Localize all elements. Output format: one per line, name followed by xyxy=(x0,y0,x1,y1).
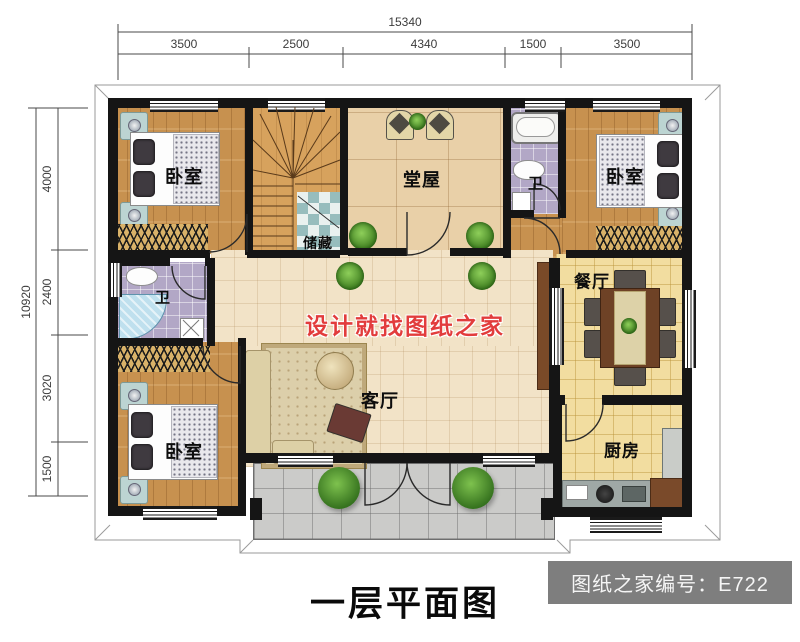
dimension-lines-top xyxy=(118,24,692,80)
dim-total-width: 15340 xyxy=(388,15,421,29)
dim-left-seg: 1500 xyxy=(40,456,54,483)
door-arc-bedroom-bl xyxy=(203,346,240,383)
door-arc-entry-left xyxy=(365,463,407,505)
room-label-kitchen: 厨房 xyxy=(604,437,640,462)
plan-number-badge: 图纸之家编号：E722 xyxy=(548,561,792,604)
door-arc-kitchen xyxy=(566,404,603,441)
dim-top-seg: 4340 xyxy=(411,37,438,51)
dim-top-seg: 1500 xyxy=(520,37,547,51)
dim-total-height: 10920 xyxy=(19,285,33,318)
dim-left-seg: 2400 xyxy=(40,279,54,306)
door-arc-bedroom-tr xyxy=(524,218,560,254)
dim-left-seg: 3020 xyxy=(40,375,54,402)
room-label-bath-left: 卫 xyxy=(155,287,171,308)
room-label-living: 客厅 xyxy=(361,387,399,413)
dimension-lines-left xyxy=(28,108,88,496)
door-arc-entry-right xyxy=(407,463,450,505)
room-label-bedroom-bl: 卧室 xyxy=(165,438,203,464)
stair-treads xyxy=(253,107,340,250)
room-label-bath-top: 卫 xyxy=(528,173,544,194)
floor-plan-canvas: 15340 3500 2500 4340 1500 3500 10920 400… xyxy=(0,0,800,642)
room-label-storage: 储藏 xyxy=(303,233,333,253)
dim-top-seg: 2500 xyxy=(283,37,310,51)
room-label-hall: 堂屋 xyxy=(403,166,441,192)
dim-top-seg: 3500 xyxy=(171,37,198,51)
drain-cross xyxy=(183,320,199,336)
door-arc-bath-left xyxy=(172,266,205,299)
door-arc-hall xyxy=(407,212,450,255)
dim-top-seg: 3500 xyxy=(614,37,641,51)
door-arc-bedroom-tl xyxy=(209,214,247,252)
watermark-text: 设计就找图纸之家 xyxy=(305,307,505,341)
room-label-bedroom-tr: 卧室 xyxy=(606,163,644,189)
plan-title: 一层平面图 xyxy=(310,576,500,627)
door-arcs xyxy=(172,184,603,505)
room-label-dining: 餐厅 xyxy=(574,268,610,293)
room-label-bedroom-tl: 卧室 xyxy=(165,163,203,189)
dim-left-seg: 4000 xyxy=(40,166,54,193)
